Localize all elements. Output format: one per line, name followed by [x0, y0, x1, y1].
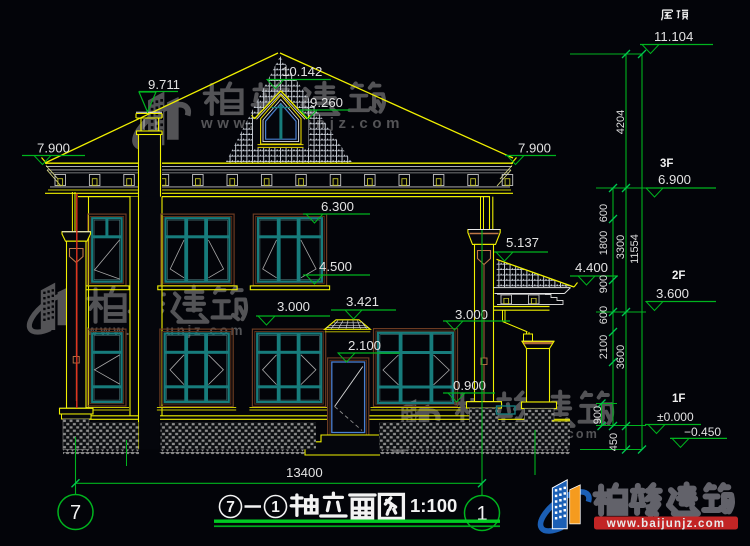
svg-text:3.600: 3.600: [656, 286, 689, 301]
svg-text:2.100: 2.100: [348, 338, 381, 353]
svg-text:600: 600: [598, 306, 610, 324]
svg-text:3300: 3300: [615, 235, 627, 259]
svg-text:900: 900: [598, 275, 610, 293]
svg-text:5.137: 5.137: [506, 235, 539, 250]
svg-text:1800: 1800: [598, 231, 610, 255]
svg-text:3F: 3F: [660, 158, 673, 170]
svg-text:3.000: 3.000: [455, 307, 488, 322]
svg-text:1:100: 1:100: [410, 495, 457, 516]
svg-text:6.900: 6.900: [658, 172, 691, 187]
svg-text:4.500: 4.500: [319, 259, 352, 274]
svg-text:1: 1: [271, 499, 280, 516]
svg-text:450: 450: [608, 433, 620, 451]
svg-text:9.711: 9.711: [148, 77, 180, 92]
svg-text:±0.000: ±0.000: [657, 410, 694, 424]
svg-text:2100: 2100: [598, 335, 610, 359]
svg-text:7: 7: [226, 499, 235, 516]
svg-text:3.000: 3.000: [277, 299, 310, 314]
svg-text:1F: 1F: [672, 393, 685, 405]
svg-text:3.421: 3.421: [346, 294, 379, 309]
svg-text:7: 7: [70, 502, 81, 524]
svg-text:4204: 4204: [615, 110, 627, 134]
svg-text:9.260: 9.260: [310, 95, 343, 110]
svg-text:6.300: 6.300: [321, 199, 354, 214]
svg-text:7.900: 7.900: [37, 141, 70, 156]
svg-text:−0.450: −0.450: [684, 425, 721, 439]
svg-text:10.142: 10.142: [282, 64, 322, 79]
svg-text:900: 900: [592, 406, 604, 424]
svg-text:11.104: 11.104: [654, 29, 693, 44]
svg-text:11554: 11554: [629, 234, 641, 264]
svg-text:0.900: 0.900: [453, 378, 486, 393]
svg-text:600: 600: [598, 204, 610, 222]
svg-text:13400: 13400: [286, 465, 323, 480]
svg-text:7.900: 7.900: [518, 141, 551, 156]
svg-text:2F: 2F: [672, 270, 685, 282]
svg-text:4.400: 4.400: [575, 260, 608, 275]
svg-text:3600: 3600: [615, 345, 627, 369]
svg-text:www.baijunjz.com: www.baijunjz.com: [606, 518, 725, 530]
